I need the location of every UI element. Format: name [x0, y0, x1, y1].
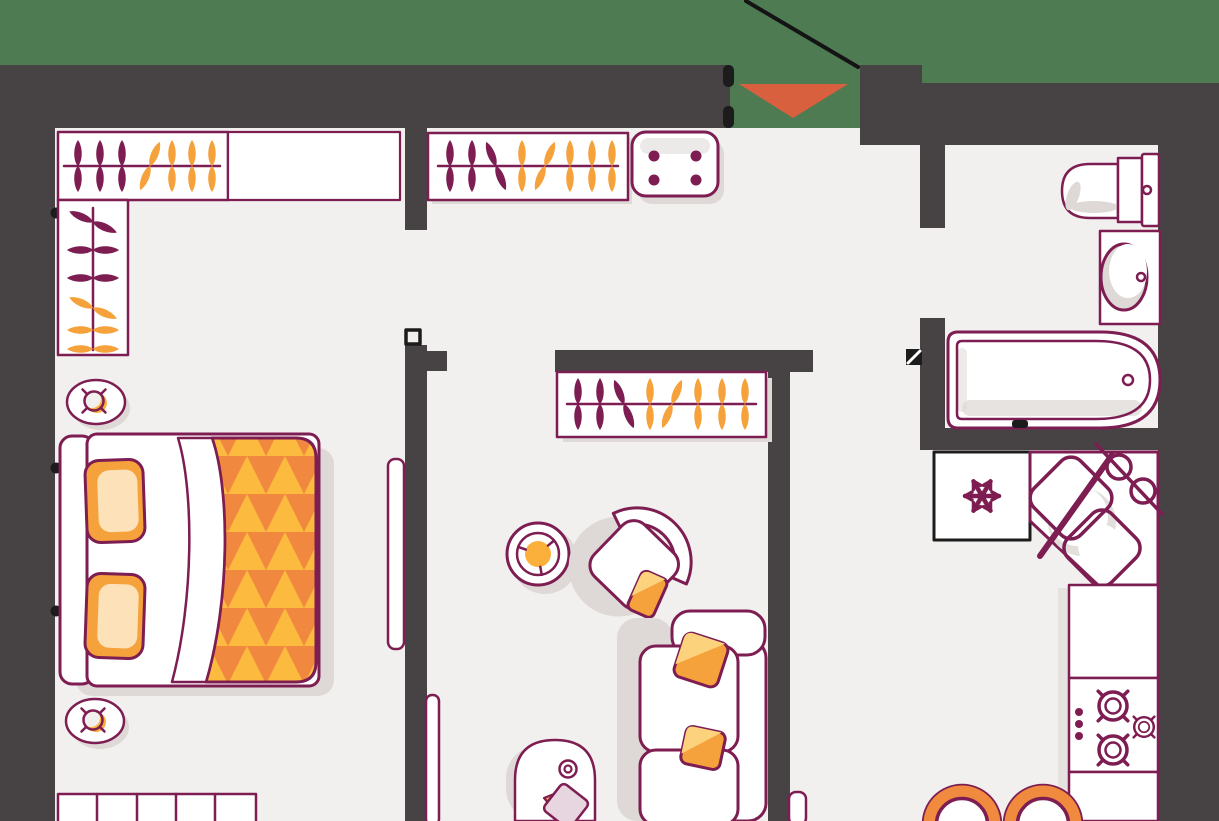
stool-leg-dot	[691, 175, 702, 186]
wall-right	[1158, 120, 1219, 821]
stool-leg-dot	[691, 151, 702, 162]
door-jamb-cap	[723, 106, 734, 128]
vent-marker	[906, 349, 922, 365]
dresser	[58, 794, 256, 821]
wall-top-left	[0, 65, 730, 128]
wall-bedroom-lower	[405, 345, 427, 821]
wall-bedroom-upper	[405, 128, 427, 230]
bedroom-door-leaf	[388, 459, 404, 649]
washbasin	[1100, 231, 1160, 324]
double-bed	[60, 434, 334, 696]
bathtub	[948, 332, 1160, 428]
hallway-wardrobe	[428, 133, 632, 204]
hob-knob-dot	[1075, 708, 1083, 716]
hall-door-leaf	[789, 792, 806, 821]
sofa-pillow	[679, 725, 726, 770]
refrigerator	[934, 452, 1030, 540]
wall-bathroom-lower	[920, 318, 945, 430]
hob-knob-dot	[1075, 732, 1083, 740]
wardrobe-shelf-section	[228, 132, 400, 200]
wall-left	[0, 65, 55, 821]
door-jamb-cap	[723, 65, 734, 87]
lamp-icon	[82, 709, 107, 733]
floor-plan-svg	[0, 0, 1219, 821]
lamp-icon	[83, 390, 108, 414]
living-door-leaf	[426, 695, 439, 821]
bed-pillow	[85, 573, 146, 659]
floor-plan-canvas	[0, 0, 1219, 821]
stool-leg-dot	[649, 151, 660, 162]
toilet	[1062, 154, 1159, 226]
kitchen-counter	[1069, 772, 1158, 821]
kitchen-counter	[1069, 585, 1158, 678]
stool-table	[632, 132, 724, 204]
stool-leg-dot	[649, 175, 660, 186]
wall-stub-entrance	[860, 65, 922, 85]
toilet-seat-hinge	[1118, 158, 1142, 222]
bassinet	[506, 740, 595, 821]
wall-below-bathtub	[920, 428, 1158, 450]
bathtub-tap-marker	[1012, 420, 1028, 428]
hob-knob-dot	[1075, 720, 1083, 728]
wall-stub-bedroom	[427, 351, 447, 371]
living-wardrobe	[557, 372, 772, 442]
sofa	[617, 611, 766, 821]
wall-bathroom-upper	[920, 145, 945, 228]
gas-hob	[1069, 678, 1158, 772]
bed-pillow	[85, 459, 146, 543]
